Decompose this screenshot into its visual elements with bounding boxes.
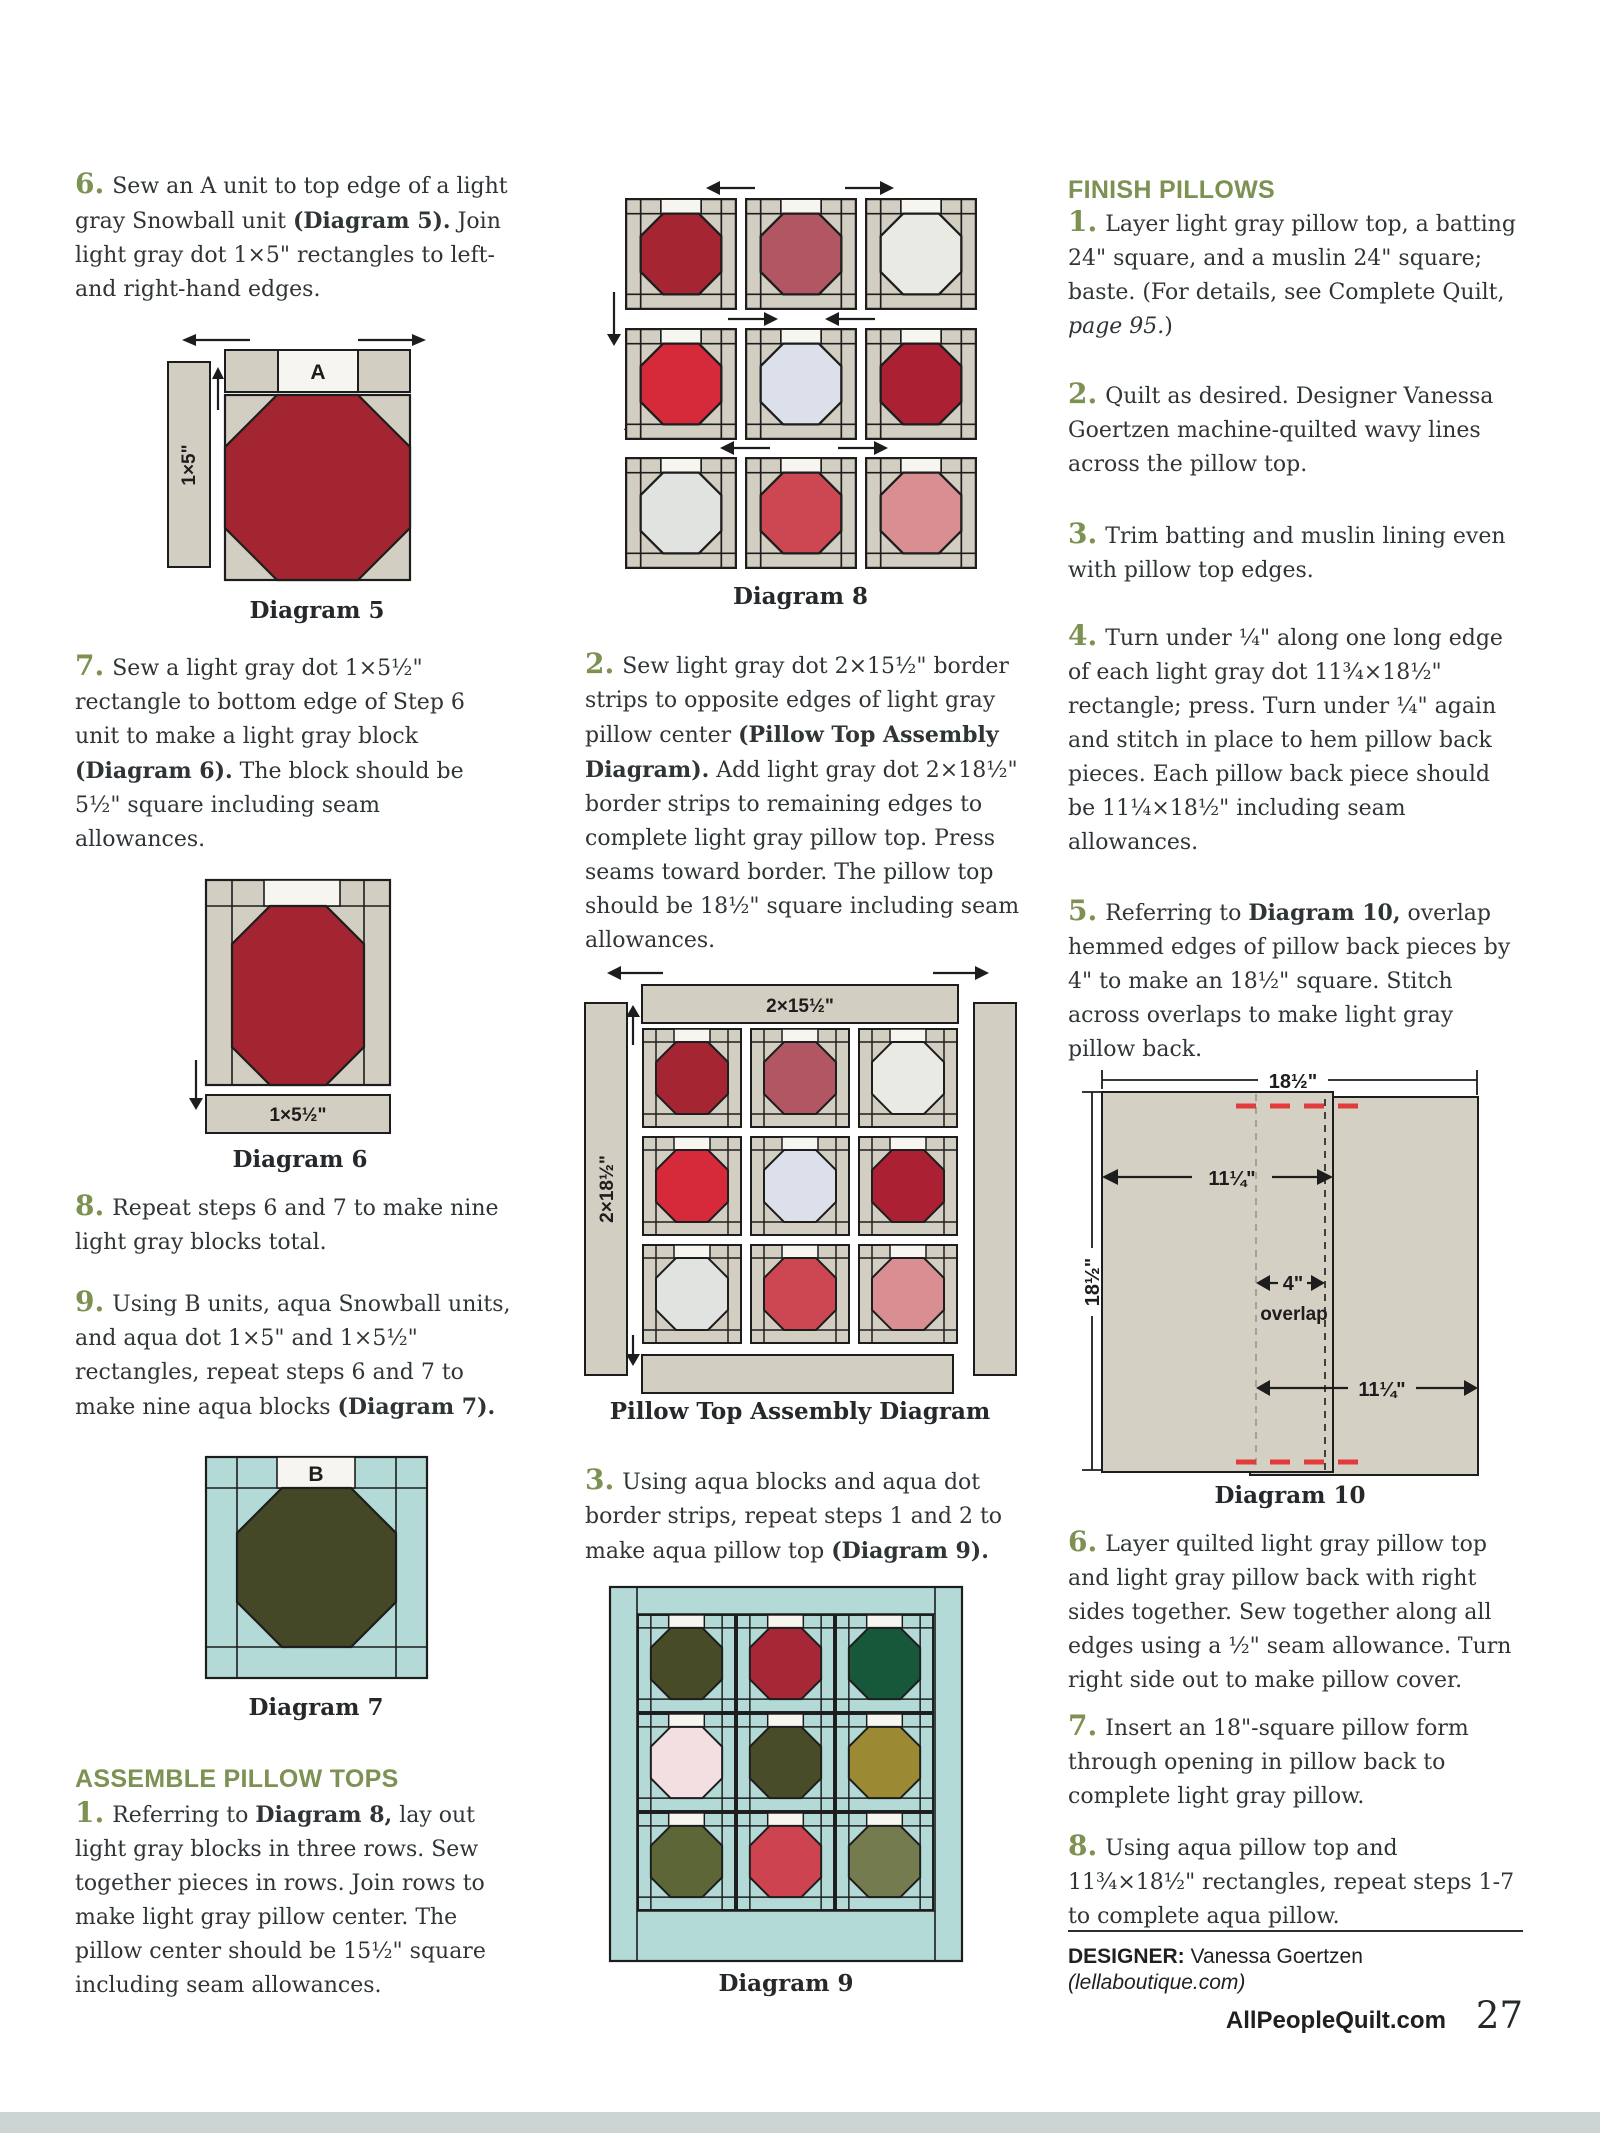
finish-step-5: 5.Referring to Diagram 10, overlap hemme… — [1068, 896, 1523, 1067]
quilt-block — [638, 1615, 735, 1712]
arrow-head — [825, 312, 839, 326]
step-text: Insert an 18"-square pillow form through… — [1068, 1716, 1469, 1809]
step-text: Sew an A unit to top edge of a light gra… — [75, 174, 508, 302]
dim-right-piece-label: 11¼" — [1358, 1379, 1405, 1401]
step-text: Using aqua blocks and aqua dot border st… — [585, 1470, 1002, 1564]
step-2: 2.Sew light gray dot 2×15½" border strip… — [585, 650, 1035, 958]
page-footer: AllPeopleQuilt.com 27 — [1068, 1994, 1523, 2037]
footer-divider — [1068, 1930, 1523, 1932]
page-bottom-bar — [0, 2112, 1600, 2133]
quilt-block — [626, 199, 736, 309]
quilt-block — [643, 1137, 741, 1235]
label-b: B — [308, 1463, 323, 1486]
step-number: 7. — [75, 649, 104, 682]
quilt-block — [866, 329, 976, 439]
quilt-block — [746, 199, 856, 309]
dim-left-label: 18½" — [1082, 1258, 1104, 1306]
snowball-octagon — [237, 1488, 396, 1647]
step-3: 3.Using aqua blocks and aqua dot border … — [585, 1466, 1035, 1569]
quilt-block — [638, 1714, 735, 1811]
diagram-10: 18½" 18½" 11¼" 4" overlap 11¼" — [1066, 1058, 1518, 1480]
finish-step-1: 1.Layer light gray pillow top, a batting… — [1068, 208, 1523, 344]
finish-step-6: 6.Layer quilted light gray pillow top an… — [1068, 1528, 1523, 1698]
step-number: 4. — [1068, 619, 1097, 652]
step-text: Sew a light gray dot 1×5½" rectangle to … — [75, 656, 465, 852]
step-number: 6. — [75, 167, 104, 200]
arrow-up-head — [212, 367, 224, 379]
step-number: 9. — [75, 1285, 104, 1318]
label-left-strip: 2×18½" — [597, 1155, 618, 1223]
finish-pillows-heading: FINISH PILLOWS — [1068, 176, 1275, 205]
border-strip-bottom — [642, 1355, 953, 1393]
step-number: 3. — [585, 1463, 614, 1496]
step-text: Quilt as desired. Designer Vanessa Goert… — [1068, 384, 1493, 477]
diagram-9-caption: Diagram 9 — [603, 1970, 969, 1997]
label-top-strip: 2×15½" — [766, 996, 834, 1017]
step-number: 2. — [585, 647, 614, 680]
quilt-block — [737, 1615, 834, 1712]
quilt-block — [626, 458, 736, 568]
quilt-block — [751, 1029, 849, 1127]
step-text: Repeat steps 6 and 7 to make nine light … — [75, 1196, 499, 1255]
step-number: 3. — [1068, 517, 1097, 550]
step-7: 7.Sew a light gray dot 1×5½" rectangle t… — [75, 652, 515, 857]
arrow-head — [607, 966, 621, 980]
quilt-block — [751, 1245, 849, 1343]
step-6: 6.Sew an A unit to top edge of a light g… — [75, 170, 515, 307]
white-patch — [264, 880, 340, 906]
quilt-block — [836, 1615, 933, 1712]
quilt-block — [643, 1245, 741, 1343]
step-text: Using B units, aqua Snowball units, and … — [75, 1292, 511, 1420]
arrow-right-head — [412, 334, 426, 346]
designer-name: Vanessa Goertzen — [1191, 1945, 1363, 1968]
step-text: Referring to Diagram 8, lay out light gr… — [75, 1803, 486, 1998]
arrow-head — [764, 312, 778, 326]
arrow-head — [626, 1354, 640, 1366]
step-number: 6. — [1068, 1525, 1097, 1558]
step-text: Turn under ¼" along one long edge of eac… — [1068, 626, 1503, 855]
diagram-5: A 1×5" — [100, 330, 430, 592]
step-number: 7. — [1068, 1709, 1097, 1742]
designer-credit: DESIGNER: Vanessa Goertzen (lellaboutiqu… — [1068, 1944, 1523, 1996]
arrow-down-head — [189, 1098, 203, 1110]
step-text: Referring to Diagram 10, overlap hemmed … — [1068, 901, 1510, 1062]
quilt-block — [737, 1714, 834, 1811]
arrow-head — [720, 441, 734, 455]
step-8: 8.Repeat steps 6 and 7 to make nine ligh… — [75, 1192, 515, 1260]
snowball-octagon — [225, 395, 410, 580]
finish-step-3: 3.Trim batting and muslin lining even wi… — [1068, 520, 1523, 588]
diagram-6-caption: Diagram 6 — [140, 1146, 460, 1173]
arrow-head — [607, 334, 621, 346]
arrow-head — [626, 1005, 640, 1017]
step-number: 2. — [1068, 377, 1097, 410]
arrow-head — [874, 441, 888, 455]
quilt-block — [746, 458, 856, 568]
arrow-head — [706, 181, 720, 195]
step-text: Sew light gray dot 2×15½" border strips … — [585, 654, 1019, 953]
dim-left-piece-label: 11¼" — [1208, 1168, 1255, 1190]
arrow-left-head — [182, 334, 196, 346]
step-number: 5. — [1068, 894, 1097, 927]
diagram-6: 1×5½" — [140, 868, 460, 1138]
quilt-block — [626, 329, 736, 439]
pillow-top-assembly-caption: Pillow Top Assembly Diagram — [578, 1398, 1022, 1425]
quilt-block — [866, 199, 976, 309]
dim-top-label: 18½" — [1269, 1071, 1317, 1093]
step-number: 1. — [1068, 205, 1097, 238]
quilt-block — [866, 458, 976, 568]
diagram-7-caption: Diagram 7 — [166, 1694, 466, 1721]
footer-page-number: 27 — [1476, 1994, 1523, 2037]
quilt-block — [643, 1029, 741, 1127]
designer-line: DESIGNER: Vanessa Goertzen — [1068, 1944, 1523, 1970]
diagram-10-caption: Diagram 10 — [1066, 1482, 1514, 1509]
finish-step-2: 2.Quilt as desired. Designer Vanessa Goe… — [1068, 380, 1523, 482]
quilt-block — [751, 1137, 849, 1235]
diagram-7: B — [145, 1448, 445, 1688]
quilt-block — [746, 329, 856, 439]
overlap-size-label: 4" — [1283, 1273, 1304, 1295]
quilt-block — [638, 1813, 735, 1910]
snowball-octagon — [232, 906, 364, 1085]
overlap-word-label: overlap — [1260, 1304, 1328, 1325]
border-strip-right — [974, 1003, 1016, 1375]
finish-step-4: 4.Turn under ¼" along one long edge of e… — [1068, 622, 1523, 860]
designer-label: DESIGNER: — [1068, 1945, 1185, 1968]
step-number: 8. — [75, 1189, 104, 1222]
step-text: Using aqua pillow top and 11¾×18½" recta… — [1068, 1836, 1514, 1929]
finish-step-7: 7.Insert an 18"-square pillow form throu… — [1068, 1712, 1523, 1814]
step-text: Layer light gray pillow top, a batting 2… — [1068, 212, 1516, 339]
step-text: Layer quilted light gray pillow top and … — [1068, 1532, 1511, 1693]
label-side-strip: 1×5" — [179, 444, 200, 485]
quilt-block — [859, 1245, 957, 1343]
step-9: 9.Using B units, aqua Snowball units, an… — [75, 1288, 515, 1425]
diagram-9 — [603, 1578, 968, 1968]
step-text: Trim batting and muslin lining even with… — [1068, 524, 1506, 583]
diagram-8-caption: Diagram 8 — [583, 583, 1018, 610]
label-bottom-strip: 1×5½" — [269, 1105, 326, 1126]
step-number: 8. — [1068, 1829, 1097, 1862]
pillow-top-assembly-diagram: 2×15½" 2×18½" — [578, 952, 1030, 1398]
label-a: A — [310, 361, 325, 384]
magazine-page: 6.Sew an A unit to top edge of a light g… — [0, 0, 1600, 2133]
quilt-block — [836, 1813, 933, 1910]
assemble-step-1: 1.Referring to Diagram 8, lay out light … — [75, 1798, 515, 2003]
finish-step-8: 8.Using aqua pillow top and 11¾×18½" rec… — [1068, 1832, 1523, 1934]
quilt-block — [836, 1714, 933, 1811]
diagram-5-caption: Diagram 5 — [152, 597, 482, 624]
arrow-head — [975, 966, 989, 980]
quilt-block — [737, 1813, 834, 1910]
footer-site: AllPeopleQuilt.com — [1226, 2007, 1446, 2035]
step-number: 1. — [75, 1796, 104, 1829]
quilt-block — [859, 1137, 957, 1235]
assemble-pillow-tops-heading: ASSEMBLE PILLOW TOPS — [75, 1765, 399, 1794]
quilt-block — [859, 1029, 957, 1127]
arrow-head — [880, 181, 894, 195]
diagram-8 — [598, 148, 1033, 580]
designer-site: (lellaboutique.com) — [1068, 1970, 1523, 1996]
